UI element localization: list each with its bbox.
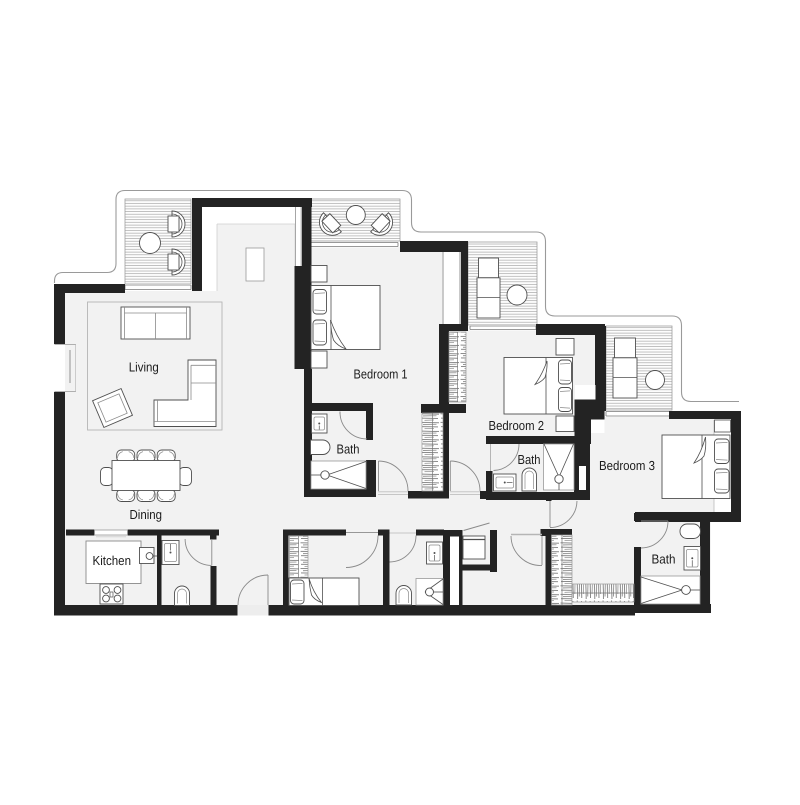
svg-text:Bedroom 2: Bedroom 2: [489, 418, 545, 433]
svg-text:Kitchen: Kitchen: [93, 553, 132, 568]
svg-text:Bedroom 3: Bedroom 3: [599, 458, 655, 473]
svg-text:Dining: Dining: [130, 507, 163, 522]
svg-text:Bedroom 1: Bedroom 1: [354, 367, 408, 382]
svg-text:Bath: Bath: [518, 452, 541, 467]
svg-text:Living: Living: [129, 360, 159, 375]
svg-text:Bath: Bath: [652, 552, 676, 567]
svg-text:Bath: Bath: [337, 441, 360, 456]
